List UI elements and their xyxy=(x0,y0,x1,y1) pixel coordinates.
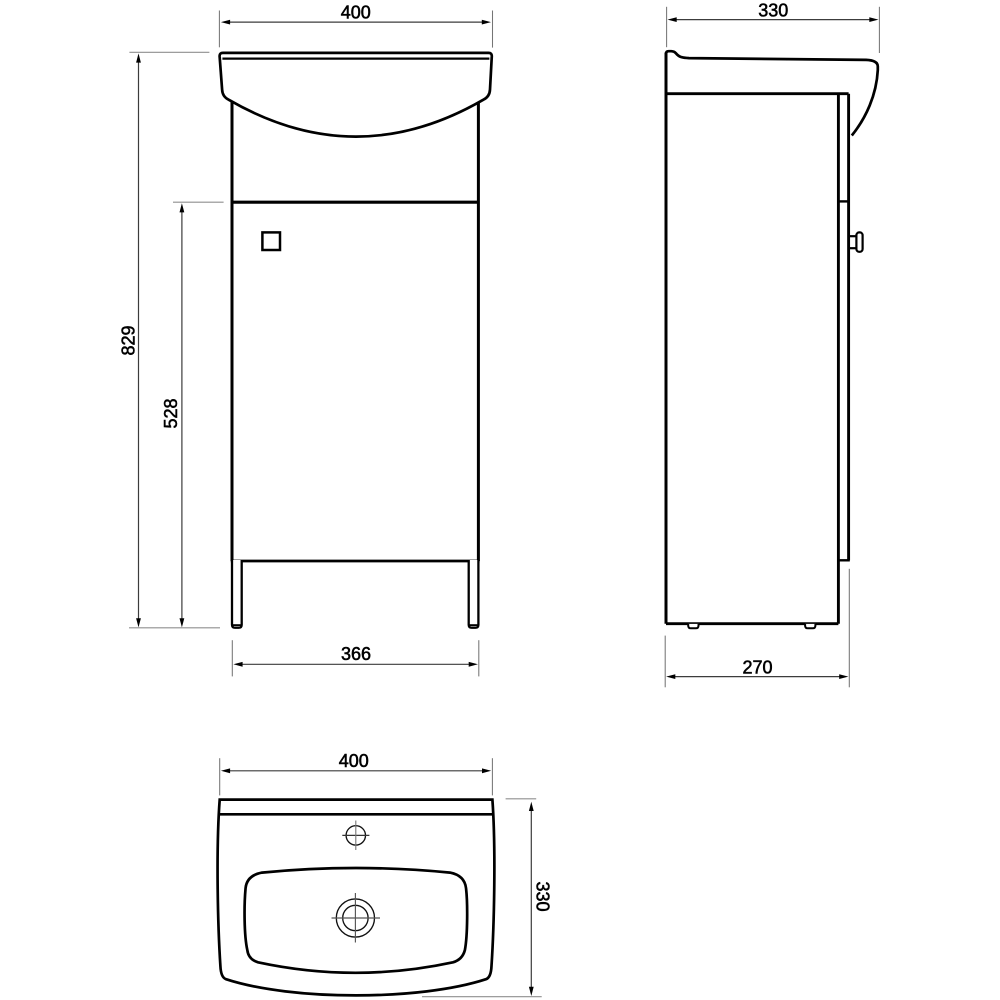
svg-text:330: 330 xyxy=(533,881,553,911)
svg-text:366: 366 xyxy=(341,644,371,664)
svg-text:400: 400 xyxy=(341,2,371,22)
svg-text:829: 829 xyxy=(118,325,138,355)
svg-text:270: 270 xyxy=(742,658,772,678)
svg-text:330: 330 xyxy=(758,1,788,21)
svg-text:528: 528 xyxy=(161,398,181,428)
svg-text:400: 400 xyxy=(339,751,369,771)
